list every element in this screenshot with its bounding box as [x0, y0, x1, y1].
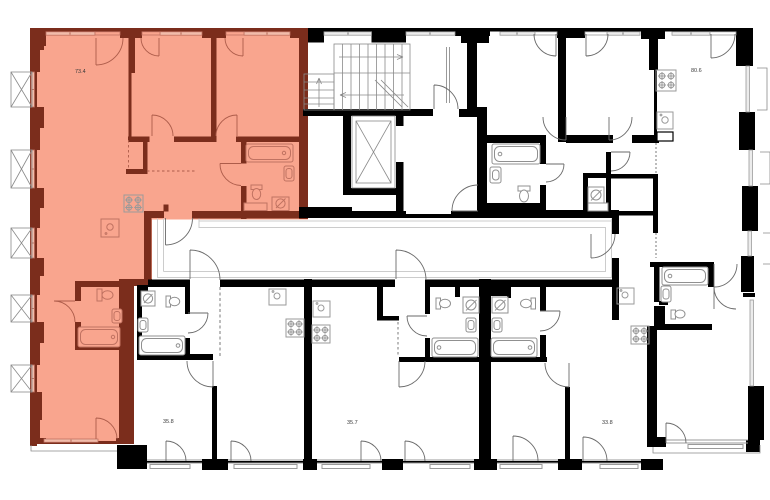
svg-text:80.6: 80.6 — [691, 68, 702, 74]
svg-text:33.8: 33.8 — [602, 420, 613, 426]
svg-text:73.4: 73.4 — [75, 69, 86, 75]
svg-text:35.8: 35.8 — [163, 419, 174, 425]
svg-text:35.7: 35.7 — [347, 420, 358, 426]
